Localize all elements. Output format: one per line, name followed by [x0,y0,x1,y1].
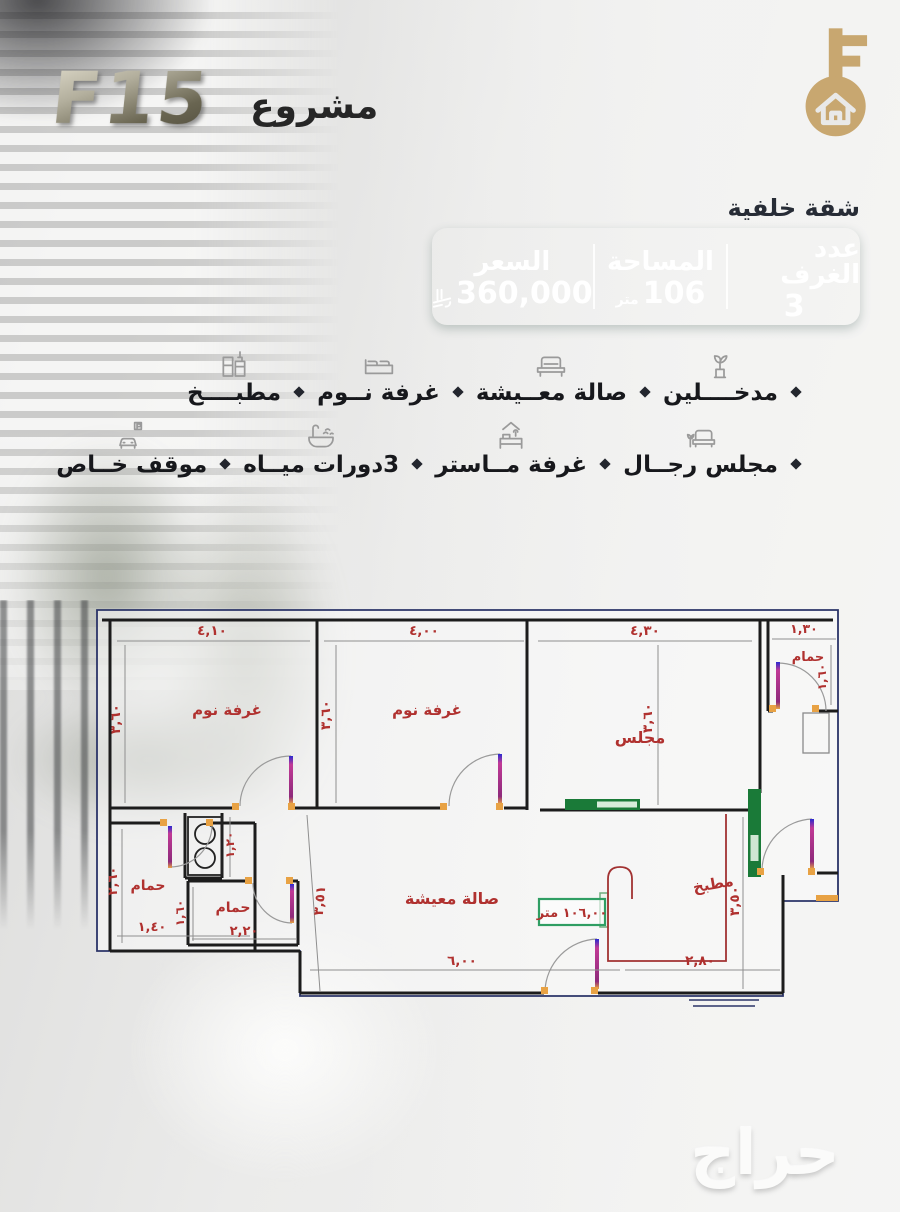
diamond-bullet [639,387,650,398]
diamond-bullet [599,459,610,470]
stats-divider [726,244,728,309]
entrance-porch-lines [689,1000,759,1006]
parking-icon [114,420,150,452]
majlis-sofa-icon [683,420,719,452]
dim-wc-height: ١,٢٠ [223,832,237,859]
feature-label: مطبــــخ [187,381,281,406]
dim-kitchen-width: ٢,٨٠ [685,953,715,969]
key-house-logo-icon [796,28,878,138]
area-unit: متر [616,293,639,309]
room-label-bedroom2: غرفة نوم [392,701,462,719]
diamond-bullet [790,459,801,470]
price-number: 360,000 [456,279,593,309]
feature-bedroom: غرفة نــوم [317,348,476,406]
dim-bed1-width: ٤,١٠ [197,623,227,639]
diamond-bullet [220,459,231,470]
dim-bath-left-width: ١,٤٠ [138,920,167,935]
master-bed-icon [493,420,529,452]
stats-table: عدد الغرف 3 المساحة 106 متر السعر 360,00… [432,228,860,325]
dim-bath-mid-width: ٢,٢٠ [230,924,259,939]
feature-label: مجلس رجــال [623,453,778,478]
dim-bath-mid-height: ١,٦٠ [173,900,187,927]
stats-price-column: السعر 360,000 [432,228,593,325]
bathtub-icon [303,420,339,452]
dim-living-diagonal: ٣,٥١ [311,885,330,916]
diamond-bullet [293,387,304,398]
room-label-bath-top: حمام [792,650,825,665]
project-word: مشروع [250,86,378,127]
price-header: السعر [474,249,550,275]
room-label-bath-mid: حمام [216,900,251,916]
feature-parking: موقف خــاص [56,420,243,478]
room-label-bath-left: حمام [131,878,166,894]
diamond-bullet [412,459,423,470]
feature-bathrooms: 3دورات ميــاه [243,420,435,478]
entrance-plant-icon [702,348,738,380]
feature-kitchen: مطبــــخ [187,348,317,406]
feature-entrances: مدخــــلين [663,348,814,406]
area-value: 106 متر [616,279,706,309]
key-shape [806,28,868,136]
dim-bed2-width: ٤,٠٠ [409,623,439,639]
saudi-riyal-icon [432,287,452,309]
dim-majlis-height: ٣,٦٠ [640,703,656,733]
unit-type-label: شقة خلفية [727,194,860,222]
haraj-watermark: حراج [640,1116,890,1189]
sofa-icon [533,348,569,380]
stats-rooms-column: عدد الغرف 3 [728,228,860,325]
feature-majlis: مجلس رجــال [623,420,814,478]
diamond-bullet [452,387,463,398]
room-label-living: صالة معيشة [405,889,499,908]
room-label-bedroom1: غرفة نوم [192,701,262,719]
project-logo-f15: F15 [48,56,215,140]
features-row-2: مجلس رجــال غرفة مــاستر 3دورات ميــاه م… [56,420,814,478]
dim-bath-left-height: ٢,٦٠ [106,867,121,896]
features-row-1: مدخــــلين صالة معــيشة غرفة نــوم مطبــ… [187,348,814,406]
feature-label: غرفة نــوم [317,381,440,406]
rooms-header: عدد الغرف [728,236,860,288]
area-header: المساحة [607,249,714,275]
dim-majlis-width: ٤,٣٠ [630,623,660,639]
diamond-bullet [790,387,801,398]
kitchen-icon [216,348,252,380]
dim-bed1-height: ٣,٦٠ [108,704,124,734]
feature-label: مدخــــلين [663,381,778,406]
feature-master-room: غرفة مــاستر [435,420,623,478]
area-number: 106 [643,279,706,309]
stats-divider [593,244,595,309]
feature-label: موقف خــاص [56,453,207,478]
price-value: 360,000 [432,279,593,309]
feature-label: غرفة مــاستر [435,453,587,478]
area-badge-text: ١٠٦,٠٠ متر [536,906,608,921]
dim-kitchen-height: ٣,٥٠ [727,886,743,916]
feature-label: 3دورات ميــاه [243,453,399,478]
floor-plan: غرفة نوم غرفة نوم مجلس حمام حمام حمام مط… [92,593,848,1015]
dim-living-width: ٦,٠٠ [447,953,477,969]
feature-living-room: صالة معــيشة [476,348,663,406]
rooms-value: 3 [784,292,805,322]
feature-label: صالة معــيشة [476,381,627,406]
dim-bed2-height: ٣,٦٠ [318,700,334,730]
stats-area-column: المساحة 106 متر [595,228,727,325]
bed-icon [361,348,397,380]
dim-bath-top-width: ١,٣٠ [790,621,818,636]
dim-bath-top-height: ١,٦٠ [815,664,829,691]
